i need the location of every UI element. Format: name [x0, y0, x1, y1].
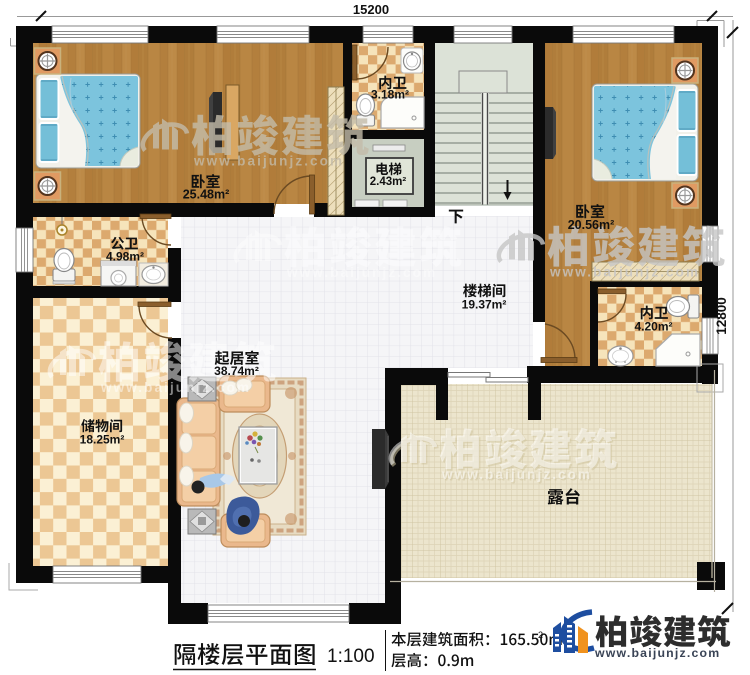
svg-text:1:100: 1:100 — [327, 646, 375, 667]
svg-text:25.48m²: 25.48m² — [183, 188, 230, 202]
svg-text:www.baijunjz.com: www.baijunjz.com — [594, 646, 720, 660]
svg-text:3.18m²: 3.18m² — [371, 88, 409, 102]
svg-text:20.56m²: 20.56m² — [568, 218, 615, 232]
svg-text:www.baijunjz.com: www.baijunjz.com — [286, 265, 437, 280]
svg-text:19.37m²: 19.37m² — [462, 298, 507, 312]
svg-text:4.20m²: 4.20m² — [634, 320, 672, 334]
svg-text:www.baijunjz.com: www.baijunjz.com — [100, 380, 251, 395]
svg-text:4.98m²: 4.98m² — [106, 250, 144, 264]
svg-text:www.baijunjz.com: www.baijunjz.com — [193, 154, 344, 169]
svg-text:38.74m²: 38.74m² — [214, 364, 259, 378]
svg-text:12800: 12800 — [714, 297, 729, 335]
svg-text:2.43m²: 2.43m² — [370, 176, 407, 188]
svg-text:www.baijunjz.com: www.baijunjz.com — [441, 467, 592, 482]
svg-text:2: 2 — [538, 630, 543, 640]
svg-text:www.baijunjz.com: www.baijunjz.com — [549, 265, 700, 280]
svg-text:18.25m²: 18.25m² — [80, 433, 125, 447]
svg-text:15200: 15200 — [353, 2, 389, 17]
